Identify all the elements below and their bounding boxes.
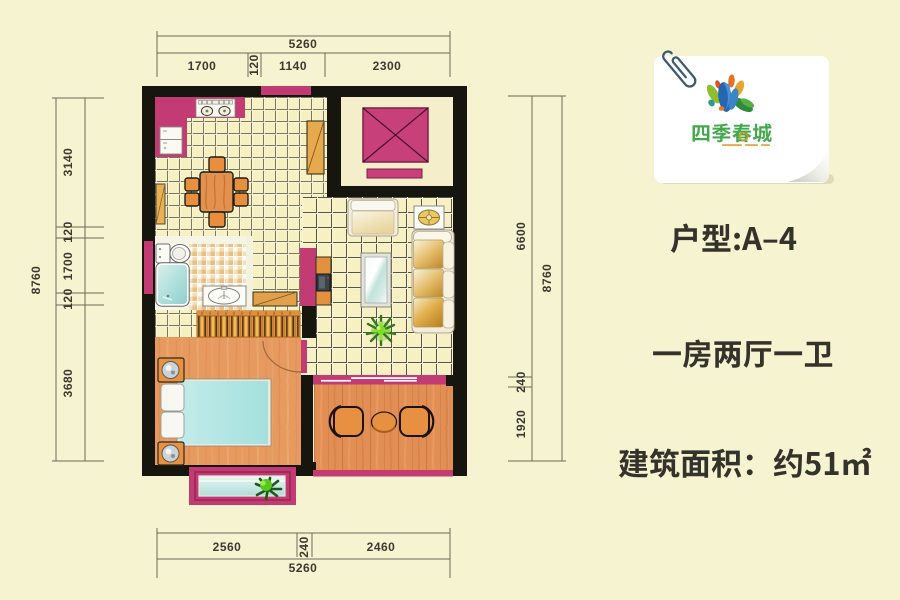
svg-text:1140: 1140: [279, 59, 307, 73]
svg-text:5260: 5260: [289, 561, 318, 575]
svg-text:240: 240: [297, 536, 311, 558]
svg-text:1700: 1700: [61, 252, 75, 281]
svg-text:6600: 6600: [514, 222, 528, 251]
svg-text:8760: 8760: [29, 266, 43, 295]
svg-text:1920: 1920: [514, 410, 528, 439]
svg-text:3140: 3140: [61, 148, 75, 177]
svg-text:1700: 1700: [188, 59, 217, 73]
svg-text:240: 240: [514, 371, 528, 393]
svg-text:8760: 8760: [540, 264, 554, 293]
svg-text:2560: 2560: [213, 540, 242, 554]
svg-text:2300: 2300: [373, 59, 402, 73]
svg-text:5260: 5260: [289, 37, 318, 51]
svg-text:120: 120: [61, 221, 75, 243]
svg-text:2460: 2460: [367, 540, 396, 554]
svg-text:3680: 3680: [61, 369, 75, 398]
svg-text:120: 120: [247, 54, 261, 76]
svg-text:120: 120: [61, 288, 75, 310]
